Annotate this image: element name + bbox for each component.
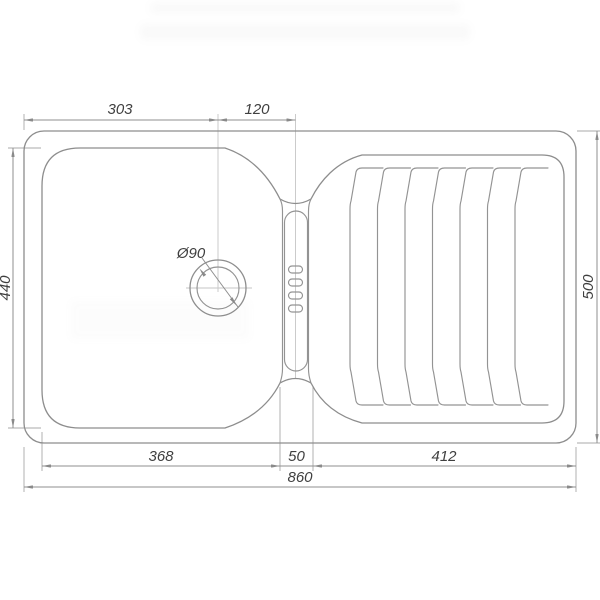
dim-label-drain-diameter: Ø90 — [176, 245, 206, 262]
watermark-smudge — [150, 2, 460, 14]
watermark-smudge — [70, 300, 250, 340]
dim-label-500: 500 — [580, 274, 597, 300]
dim-label-440: 440 — [0, 275, 14, 301]
technical-drawing-canvas: 303 120 440 500 368 50 412 860 Ø90 — [0, 0, 600, 600]
dim-label-120: 120 — [244, 101, 270, 118]
drainboard-groove — [515, 168, 548, 405]
dim-label-50: 50 — [288, 448, 305, 465]
drainboard-grooves — [350, 168, 548, 405]
sink-body — [24, 131, 576, 443]
dim-label-412: 412 — [431, 448, 457, 465]
dim-label-368: 368 — [148, 448, 174, 465]
dim-label-860: 860 — [287, 469, 313, 486]
overflow-stadium — [285, 211, 308, 371]
inner-cutout-outline — [42, 148, 564, 428]
dim-label-303: 303 — [107, 101, 133, 118]
watermark-smudge — [140, 24, 470, 40]
